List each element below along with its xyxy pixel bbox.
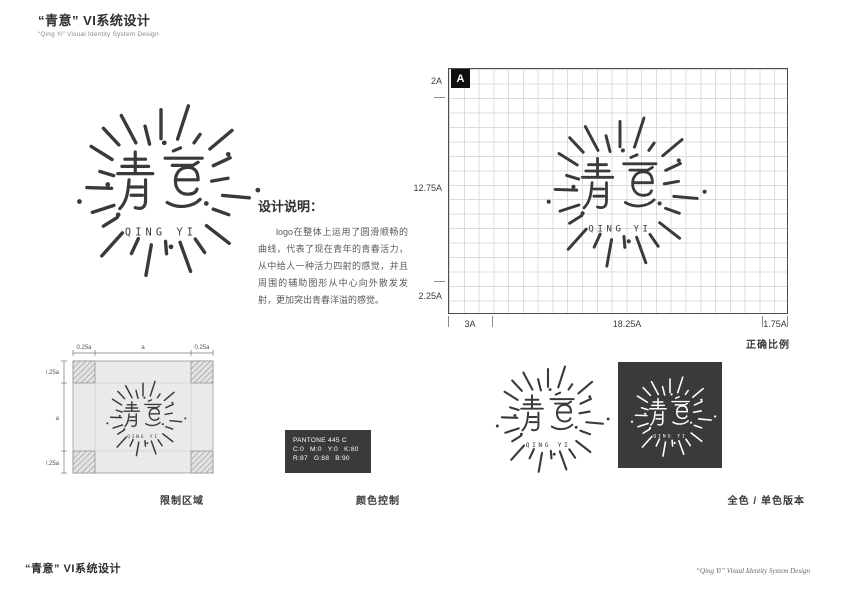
pantone-name: PANTONE 445 C xyxy=(293,436,371,445)
dim-top-right: 0.25a xyxy=(194,345,210,351)
clearspace-panel: 0.25a a 0.25a 0.25a a 0.25a xyxy=(46,344,216,504)
caption-color-control: 颜色控制 xyxy=(310,492,400,507)
header: “青意” VI系统设计 “Qing Yi” Visual Identity Sy… xyxy=(38,10,159,38)
dim-top-mid: a xyxy=(141,345,145,351)
description-title: 设计说明： xyxy=(258,196,408,215)
vi-design-board: QING YI “青意” VI系统设计 “Qing Yi” Visual Ide… xyxy=(0,0,848,600)
axis-label-top-height: 2A xyxy=(406,76,442,86)
logo-reversed-version xyxy=(622,367,718,463)
unit-marker: A xyxy=(451,69,470,88)
tick xyxy=(434,97,445,98)
dim-left-top: 0.25a xyxy=(46,370,60,376)
logo-reversed-tile xyxy=(618,362,722,468)
description-body: logo在整体上运用了圆滑顺畅的曲线，代表了现在青年的青春活力，从中给人一种活力… xyxy=(258,224,408,309)
caption-restricted-area: 限制区域 xyxy=(112,492,204,507)
axis-label-mid-height: 12.75A xyxy=(406,183,442,193)
logo-in-grid xyxy=(530,99,710,279)
footer-title: “青意” VI系统设计 xyxy=(25,560,121,576)
rgb-values: R:87G:88B:90 xyxy=(293,454,371,463)
proportion-grid-panel: A 2A 12.75A 2.25A 3A 18.25A 1.75A xyxy=(448,68,788,314)
axis-label-right-width: 1.75A xyxy=(745,319,805,329)
page-subtitle: “Qing Yi” Visual Identity System Design xyxy=(38,31,159,38)
page-title: “青意” VI系统设计 xyxy=(38,10,159,29)
logo-positive-version xyxy=(484,353,612,481)
axis-label-left-width: 3A xyxy=(440,319,500,329)
design-description: 设计说明： logo在整体上运用了圆滑顺畅的曲线，代表了现在青年的青春活力，从中… xyxy=(258,196,408,309)
tick xyxy=(434,281,445,282)
dim-left-bottom: 0.25a xyxy=(46,461,60,467)
pantone-swatch: PANTONE 445 C C:0M:0Y:0K:80 R:87G:88B:90 xyxy=(285,430,371,473)
axis-label-mid-width: 18.25A xyxy=(597,319,657,329)
caption-color-versions: 全色 / 单色版本 xyxy=(705,492,805,507)
footer-subtitle: “Qing Yi” Visual Identity System Design xyxy=(610,567,810,575)
logo-main xyxy=(58,84,264,290)
dim-top-left: 0.25a xyxy=(76,345,92,351)
cmyk-values: C:0M:0Y:0K:80 xyxy=(293,445,371,454)
dim-left-mid: a xyxy=(56,416,60,422)
axis-label-bottom-height: 2.25A xyxy=(406,291,442,301)
caption-correct-proportion: 正确比例 xyxy=(690,336,790,351)
